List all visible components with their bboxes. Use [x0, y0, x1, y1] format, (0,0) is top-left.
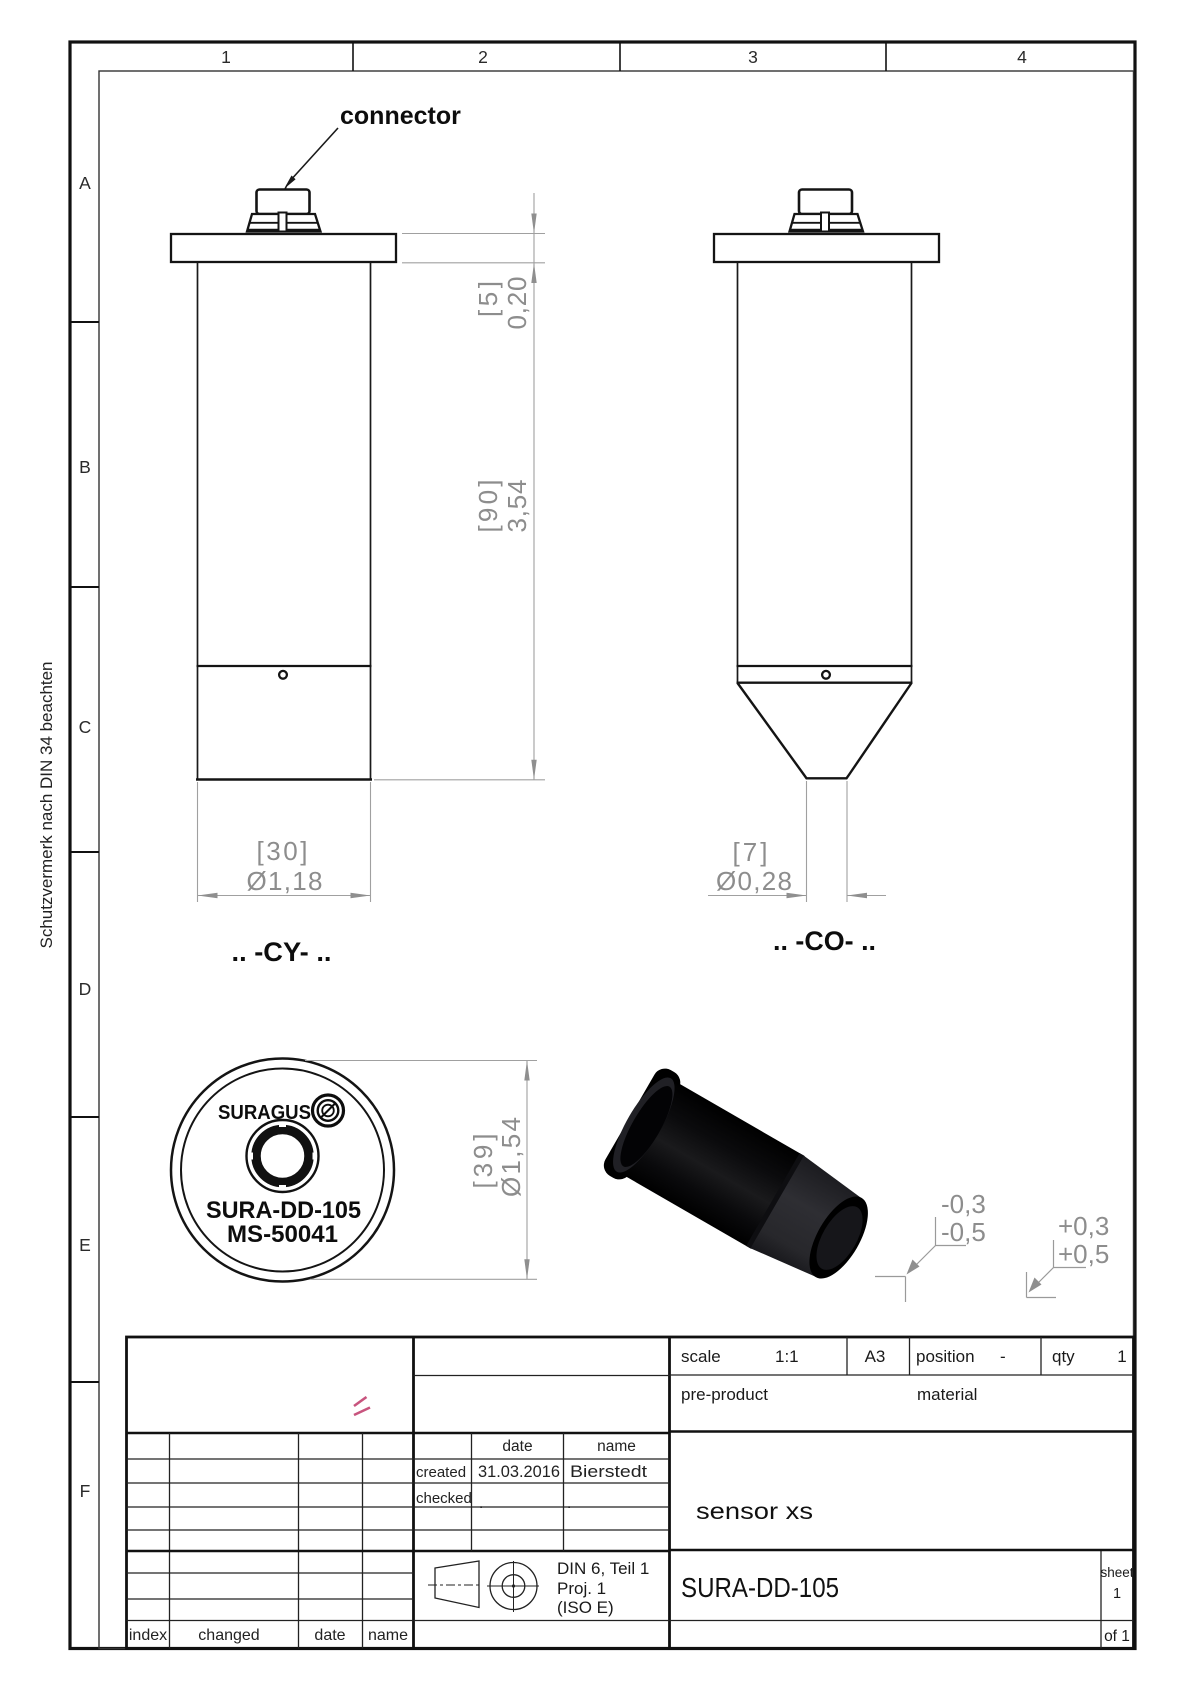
svg-text:+0,5: +0,5 [1058, 1239, 1109, 1269]
svg-text:SURA-DD-105: SURA-DD-105 [681, 1572, 839, 1603]
svg-text:A3: A3 [865, 1347, 886, 1366]
svg-text:Schutzvermerk nach DIN 34 beac: Schutzvermerk nach DIN 34 beachten [38, 662, 56, 949]
svg-text:Ø0,28: Ø0,28 [716, 866, 792, 896]
svg-text:-0,3: -0,3 [941, 1189, 986, 1219]
svg-text:pre-product: pre-product [681, 1385, 768, 1404]
svg-text:0,20: 0,20 [502, 277, 532, 330]
svg-text:Ø1,54: Ø1,54 [496, 1117, 526, 1197]
svg-text:3: 3 [748, 47, 758, 67]
svg-text:-: - [1000, 1347, 1006, 1366]
svg-text:position: position [916, 1347, 975, 1366]
svg-text:changed: changed [198, 1627, 259, 1644]
svg-text:scale: scale [681, 1347, 721, 1366]
svg-text:.: . [567, 1495, 571, 1512]
svg-text:connector: connector [340, 102, 461, 130]
svg-text:name: name [597, 1438, 636, 1455]
svg-text:D: D [79, 979, 92, 999]
svg-text:Bierstedt: Bierstedt [570, 1463, 647, 1481]
svg-text:Ø1,18: Ø1,18 [247, 866, 323, 896]
svg-text:name: name [368, 1627, 408, 1644]
svg-text:2: 2 [478, 47, 488, 67]
svg-text:(ISO E): (ISO E) [557, 1598, 614, 1617]
svg-text:Proj. 1: Proj. 1 [557, 1579, 606, 1598]
svg-text:F: F [80, 1481, 91, 1501]
svg-text:qty: qty [1052, 1347, 1075, 1366]
svg-text:sheet: sheet [1100, 1565, 1133, 1580]
svg-text:.: . [479, 1495, 483, 1512]
svg-text:material: material [917, 1385, 977, 1404]
svg-text:date: date [314, 1627, 345, 1644]
svg-text:index: index [129, 1627, 167, 1644]
svg-text:checked: checked [416, 1490, 472, 1507]
svg-text:1: 1 [221, 47, 231, 67]
svg-text:[5]: [5] [473, 281, 503, 317]
svg-text:3,54: 3,54 [502, 480, 532, 533]
svg-text:1:1: 1:1 [775, 1347, 799, 1366]
svg-text:C: C [79, 717, 92, 737]
svg-text:.. -CY- ..: .. -CY- .. [232, 937, 332, 967]
svg-text:SURA-DD-105: SURA-DD-105 [206, 1197, 361, 1224]
svg-text:[7]: [7] [733, 837, 768, 867]
svg-text:created: created [416, 1464, 466, 1481]
svg-text:of 1: of 1 [1104, 1628, 1130, 1645]
svg-text:1: 1 [1117, 1347, 1126, 1366]
svg-text:+0,3: +0,3 [1058, 1211, 1109, 1241]
svg-text:sensor xs: sensor xs [696, 1498, 813, 1524]
svg-text:31.03.2016: 31.03.2016 [478, 1463, 560, 1481]
svg-text:DIN 6, Teil 1: DIN 6, Teil 1 [557, 1559, 649, 1578]
svg-text:date: date [502, 1438, 532, 1455]
svg-text:4: 4 [1017, 47, 1027, 67]
svg-text:B: B [79, 457, 91, 477]
svg-text:.. -CO- ..: .. -CO- .. [773, 926, 876, 956]
svg-text:MS-50041: MS-50041 [227, 1221, 338, 1248]
svg-text:-0,5: -0,5 [941, 1217, 986, 1247]
svg-text:A: A [79, 173, 91, 193]
svg-text:SURAGUS: SURAGUS [218, 1102, 311, 1124]
svg-text:1: 1 [1113, 1586, 1121, 1602]
svg-text:E: E [79, 1235, 91, 1255]
